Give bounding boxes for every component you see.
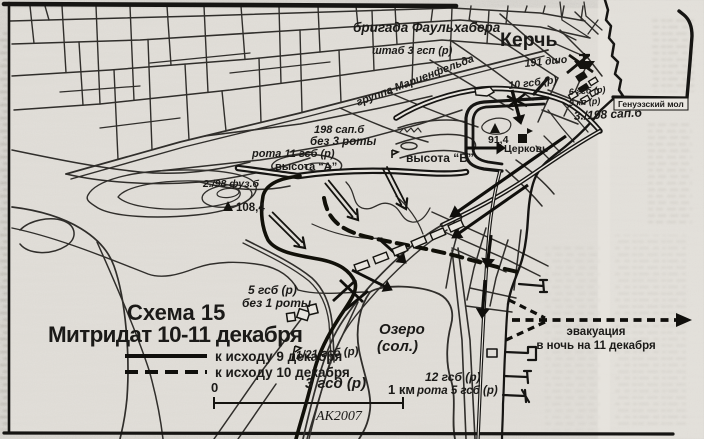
svg-text:высота “А”: высота “А” <box>275 161 337 173</box>
svg-text:Церковь: Церковь <box>504 143 549 155</box>
svg-text:Митридат 10-11 декабря: Митридат 10-11 декабря <box>48 322 302 347</box>
svg-text:без 3 роты: без 3 роты <box>310 136 376 148</box>
svg-text:2./98 фуз.б: 2./98 фуз.б <box>202 178 260 190</box>
svg-text:12 гсб (р): 12 гсб (р) <box>425 370 481 384</box>
svg-text:рота 5 гсб (р): рота 5 гсб (р) <box>416 385 498 397</box>
svg-text:5 гсб (р): 5 гсб (р) <box>248 283 297 297</box>
svg-text:0: 0 <box>211 380 218 395</box>
svg-text:АК2007: АК2007 <box>315 409 363 424</box>
svg-text:Генуэзский мол: Генуэзский мол <box>618 99 684 109</box>
svg-text:Керчь: Керчь <box>500 29 557 51</box>
svg-text:198 сап.б: 198 сап.б <box>314 124 365 136</box>
svg-text:1 км: 1 км <box>388 382 415 397</box>
svg-text:рота 11 гсб (р): рота 11 гсб (р) <box>251 148 335 160</box>
svg-text:в ночь на 11 декабря: в ночь на 11 декабря <box>536 340 655 352</box>
svg-text:эвакуация: эвакуация <box>567 326 626 338</box>
svg-text:бригада Фаульхабера: бригада Фаульхабера <box>353 20 501 35</box>
svg-text:3 гсд (р): 3 гсд (р) <box>305 375 366 392</box>
svg-text:без 1 роты: без 1 роты <box>242 296 312 310</box>
svg-text:108,4: 108,4 <box>236 202 265 214</box>
svg-text:штаб 3 гсп (р): штаб 3 гсп (р) <box>372 45 453 57</box>
svg-text:Озеро: Озеро <box>379 321 425 338</box>
svg-text:(сол.): (сол.) <box>377 338 418 355</box>
svg-text:высота “В”: высота “В” <box>406 151 474 165</box>
